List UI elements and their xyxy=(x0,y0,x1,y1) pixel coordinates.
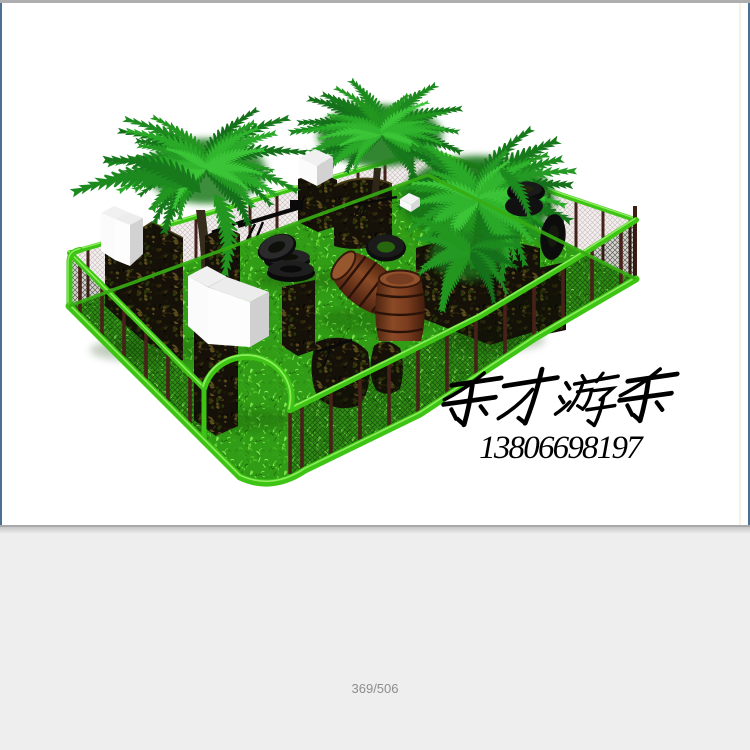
svg-text:13806698197: 13806698197 xyxy=(479,430,644,466)
